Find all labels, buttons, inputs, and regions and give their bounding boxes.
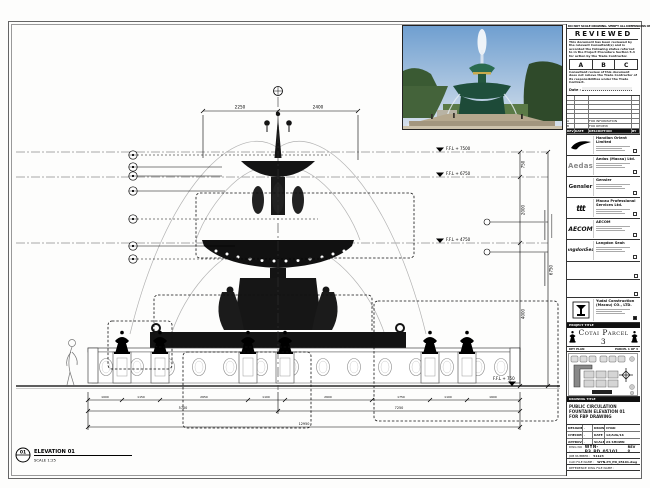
langdon-seah-logo: LangdonSeah — [568, 241, 593, 260]
key-plan-label: KEY PLAN — [569, 347, 584, 351]
stamp-paragraph-1: This document has been reviewed by the r… — [569, 41, 638, 58]
consultant-address — [596, 247, 639, 252]
consultant-box-gensler: Gensler Gensler — [567, 177, 640, 198]
dwg-revision: REV 0 — [628, 445, 638, 453]
level-label: F.F.L + 7500 — [446, 146, 471, 151]
stamp-date-line[interactable]: Date : — [569, 87, 638, 92]
dim-label: 4000 — [521, 308, 526, 319]
contractor-logo-icon — [568, 299, 593, 321]
level-label: F.F.L + 750 — [493, 376, 515, 381]
approval-checkbox[interactable] — [634, 274, 638, 278]
dwg-label: DWG NO : — [569, 445, 583, 453]
dwg-number-row: DWG NO : WYN-P3_PD_05101 REV 0 — [567, 445, 640, 453]
revision-header: REVDATE DESCRIPTIONBY — [567, 129, 640, 134]
aedas-logo: Aedas — [568, 157, 593, 175]
drawing-sheet: 2250 2400 F.F.L + 7500 F.F.L + 6750 F.F.… — [0, 0, 650, 488]
consultant-box-handian: Handian Orient Limited — [567, 135, 640, 156]
contractor-address — [596, 309, 639, 314]
svg-text:1150: 1150 — [137, 395, 145, 399]
svg-text:1600: 1600 — [489, 395, 497, 399]
consultant-name: Handian Orient Limited — [596, 136, 639, 144]
consultant-box-empty-1 — [567, 262, 640, 280]
contractor-box: Yudai Construction (Macau) CO., LTD. — [567, 298, 640, 323]
svg-text:2600: 2600 — [324, 395, 332, 399]
lamp-ornament-icon — [569, 331, 576, 344]
svg-text:7250: 7250 — [395, 406, 404, 410]
consultant-name: Macau Professional Services Ltd. — [596, 199, 639, 207]
consultant-address — [596, 184, 639, 189]
aecom-logo: AECOM — [568, 220, 593, 238]
detail-number: 01 — [20, 450, 26, 456]
dim-label: 2400 — [313, 105, 324, 110]
scale-figure — [67, 340, 78, 386]
view-title: 01 ELEVATION 01 SCALE 1:25 — [16, 448, 132, 463]
date-label: Date : — [569, 88, 581, 92]
credits-row: CHECKED- DATE12/AUG/16 — [567, 432, 640, 439]
status-option-b[interactable]: B — [593, 60, 616, 69]
scale-label: SCALE 1:25 — [34, 458, 56, 463]
reference-photo: © — [402, 25, 563, 130]
svg-text:1100: 1100 — [262, 395, 270, 399]
svg-text:1000: 1000 — [101, 395, 109, 399]
approval-checkbox[interactable] — [633, 191, 637, 195]
status-options: A B C — [569, 59, 638, 70]
photo-credit: © — [407, 123, 410, 127]
reviewed-title: REVIEWED — [569, 30, 638, 40]
drawing-title-box: PUBLIC CIRCULATION FOUNTAIN ELEVATION 01… — [567, 402, 640, 425]
svg-text:2650: 2650 — [200, 395, 208, 399]
dim-label: 6750 — [549, 264, 554, 275]
dim-label: 2000 — [521, 204, 526, 215]
dim-label: 2250 — [235, 105, 246, 110]
date-fill-line — [582, 87, 632, 91]
gensler-logo: Gensler — [568, 178, 593, 196]
dim-label: 750 — [521, 160, 526, 168]
bird-logo-icon — [568, 136, 593, 154]
approval-checkbox[interactable] — [633, 255, 637, 259]
key-plan-drawing — [567, 352, 640, 397]
consultant-address — [596, 226, 639, 231]
dwg-number: WYN-P3_PD_05101 — [585, 445, 628, 453]
approval-checkbox[interactable] — [633, 212, 637, 216]
consultant-name: AECOM — [596, 220, 639, 224]
level-label: F.F.L + 4750 — [446, 237, 471, 242]
approval-checkbox[interactable] — [634, 292, 638, 296]
svg-text:1100: 1100 — [444, 395, 452, 399]
credits-table: DESIGNED- DRAWNCHAD CHECKED- DATE12/AUG/… — [567, 425, 640, 445]
approval-checkbox[interactable] — [633, 233, 637, 237]
project-name: Cotai Parcel 3 — [576, 328, 631, 346]
lamp-ornament-icon — [631, 331, 638, 344]
revision-table: A FOR INFORMATION B FOR REVIEW REVDATE D… — [567, 96, 640, 135]
elevation-title: ELEVATION 01 — [34, 449, 75, 455]
svg-text:5700: 5700 — [179, 406, 188, 410]
approval-checkbox[interactable] — [633, 316, 637, 320]
consultant-name: Aedas (Macau) Ltd. — [596, 157, 639, 161]
consultant-name: Gensler — [596, 178, 639, 182]
svg-text:1750: 1750 — [397, 395, 405, 399]
consultant-box-empty-2 — [567, 280, 640, 298]
job-label: JOB NUMBER : — [569, 454, 590, 458]
photo-svg — [403, 26, 562, 129]
status-option-a[interactable]: A — [570, 60, 593, 69]
contractor-name: Yudai Construction (Macau) CO., LTD. — [596, 299, 639, 307]
approval-checkbox[interactable] — [633, 149, 637, 153]
svg-text:12950: 12950 — [299, 422, 310, 426]
reviewed-stamp: REVIEWED This document has been reviewed… — [567, 29, 640, 96]
approval-checkbox[interactable] — [633, 170, 637, 174]
cad-label: CAD FILE NAME : — [569, 460, 594, 464]
consultant-address — [596, 163, 639, 168]
ttt-logo: ttt — [568, 199, 593, 217]
drawing-title-line3: FOR FBP DRAWING — [569, 414, 638, 419]
consultant-box-macau-professional: ttt Macau Professional Services Ltd. — [567, 198, 640, 219]
title-block: DO NOT SCALE DRAWING. VERIFY ALL DIMENSI… — [566, 24, 640, 476]
consultant-box-aecom: AECOM AECOM — [567, 219, 640, 240]
project-name-box: Cotai Parcel 3 — [567, 328, 640, 347]
consultant-name: Langdon Seah — [596, 241, 639, 245]
status-option-c[interactable]: C — [615, 60, 637, 69]
consultant-box-langdon-seah: LangdonSeah Langdon Seah — [567, 240, 640, 262]
cad-file-name: WYN-P3_PD_05101.dwg — [597, 460, 637, 464]
title-block-filler — [567, 471, 640, 476]
job-number: 51123 — [593, 454, 603, 458]
credits-row: DESIGNED- DRAWNCHAD — [567, 425, 640, 432]
level-label: F.F.L + 6750 — [446, 171, 471, 176]
centerline-symbol — [274, 87, 283, 96]
stamp-paragraph-2: Consultant review of this document does … — [569, 71, 638, 85]
key-plan-note: PARCEL 1 OF 3 — [615, 347, 638, 351]
consultant-box-aedas: Aedas Aedas (Macau) Ltd. — [567, 156, 640, 177]
reference-label: REFERENCE DWG FILE NAME : — [569, 466, 614, 470]
